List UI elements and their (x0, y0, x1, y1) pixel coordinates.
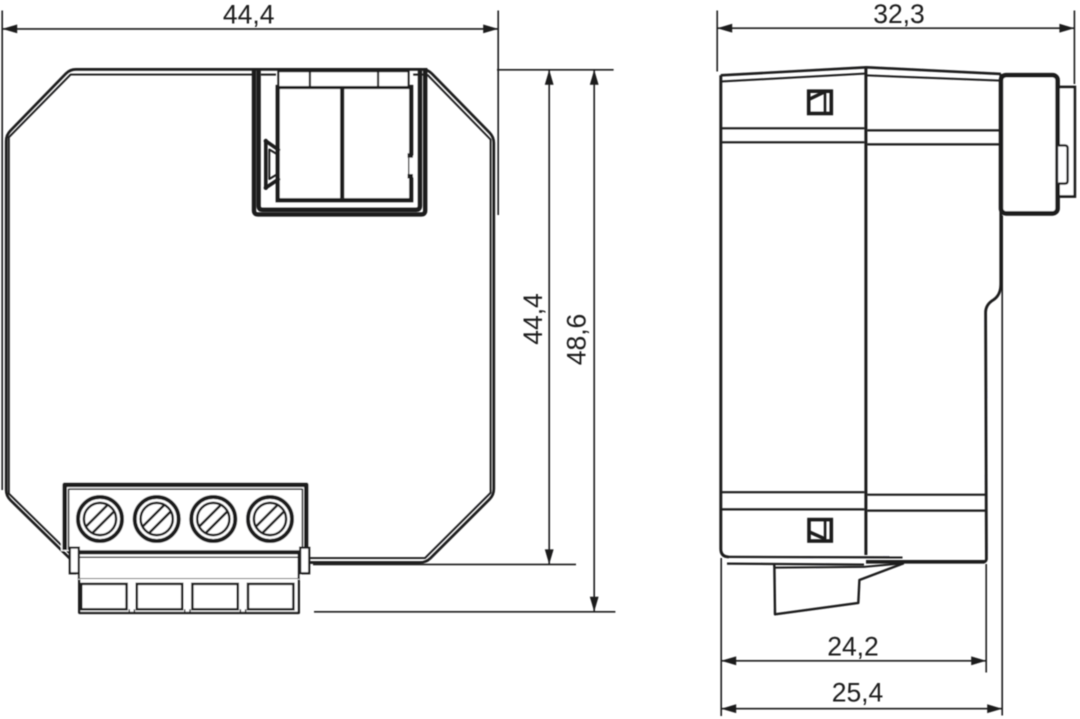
svg-text:32,3: 32,3 (873, 0, 925, 29)
svg-text:24,2: 24,2 (827, 632, 879, 662)
svg-text:48,6: 48,6 (562, 314, 592, 366)
svg-text:44,4: 44,4 (223, 0, 275, 29)
svg-text:25,4: 25,4 (832, 678, 884, 708)
svg-text:44,4: 44,4 (518, 293, 548, 345)
